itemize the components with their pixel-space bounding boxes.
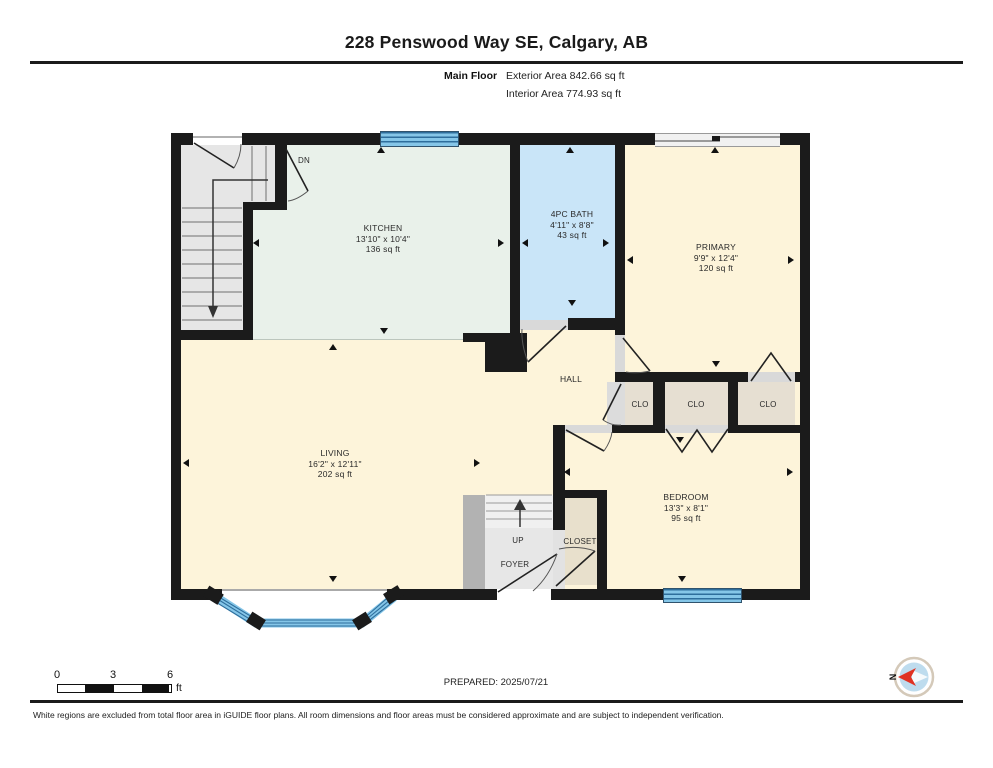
measure-arrow — [787, 468, 793, 476]
wall-segment — [243, 202, 253, 340]
measure-arrow — [566, 147, 574, 153]
wall-segment — [171, 330, 253, 340]
room-dims: 13'10" x 10'4" — [313, 234, 453, 245]
wall-segment — [568, 318, 615, 330]
measure-arrow — [474, 459, 480, 467]
compass-icon: N — [888, 658, 933, 696]
room-dims: 13'3" x 8'1" — [616, 503, 756, 514]
bay-window-opening — [222, 589, 387, 600]
bath-label: 4PC BATH 4'11" x 8'8" 43 sq ft — [502, 209, 642, 241]
header-rule — [30, 61, 963, 64]
living-label: LIVING 16'2" x 12'11" 202 sq ft — [265, 448, 405, 480]
scale-bar — [57, 684, 172, 693]
scale-tick-0: 0 — [47, 669, 67, 681]
floor-label: Main Floor — [444, 70, 497, 82]
foyer-closet-label: CLOSET — [550, 537, 610, 548]
clo2-label: CLO — [676, 400, 716, 411]
bay-window-glass — [216, 597, 394, 623]
wall-segment — [387, 589, 497, 600]
door-opening-primary-closet — [748, 372, 795, 382]
room-dims: 16'2" x 12'11" — [265, 459, 405, 470]
scale-tick-3: 3 — [103, 669, 123, 681]
wall-segment — [615, 372, 625, 382]
wall-segment — [728, 372, 738, 433]
footer-rule — [30, 700, 963, 703]
room-area: 202 sq ft — [265, 469, 405, 480]
room-area: 95 sq ft — [616, 513, 756, 524]
measure-arrow — [788, 256, 794, 264]
exterior-area: Exterior Area 842.66 sq ft — [506, 70, 624, 82]
measure-arrow — [183, 459, 189, 467]
room-dims: 4'11" x 8'8" — [502, 220, 642, 231]
measure-arrow — [627, 256, 633, 264]
clo1-label: CLO — [620, 400, 660, 411]
measure-arrow — [329, 576, 337, 582]
wall-segment — [171, 133, 181, 600]
up-label: UP — [498, 536, 538, 547]
door-opening-bedroom — [565, 425, 612, 433]
wall-segment — [242, 133, 380, 145]
foyer-stair-treads — [485, 495, 553, 528]
clo3-label: CLO — [748, 400, 788, 411]
disclaimer-text: White regions are excluded from total fl… — [33, 710, 953, 720]
measure-arrow — [568, 300, 576, 306]
kitchen-living-boundary — [253, 339, 463, 340]
wall-segment — [275, 143, 287, 203]
measure-arrow — [377, 147, 385, 153]
door-opening-bath — [520, 320, 568, 330]
room-dims: 9'9" x 12'4" — [646, 253, 786, 264]
foyer-label: FOYER — [485, 560, 545, 571]
room-name: PRIMARY — [646, 242, 786, 253]
wall-segment — [800, 133, 810, 600]
measure-arrow — [712, 361, 720, 367]
door-opening-back — [193, 133, 242, 145]
measure-arrow — [676, 437, 684, 443]
wall-segment — [485, 342, 527, 372]
north-label: N — [888, 674, 898, 681]
kitchen-label: KITCHEN 13'10" x 10'4" 136 sq ft — [313, 223, 453, 255]
wall-segment — [740, 589, 810, 600]
kitchen-window — [380, 131, 459, 147]
wall-segment — [551, 589, 663, 600]
floorplan-page: 228 Penswood Way SE, Calgary, AB Main Fl… — [0, 0, 993, 768]
primary-window — [655, 133, 780, 147]
scale-unit: ft — [176, 682, 182, 694]
measure-arrow — [380, 328, 388, 334]
page-title: 228 Penswood Way SE, Calgary, AB — [0, 32, 993, 53]
scale-tick-6: 6 — [160, 669, 180, 681]
measure-arrow — [678, 576, 686, 582]
primary-label: PRIMARY 9'9" x 12'4" 120 sq ft — [646, 242, 786, 274]
measure-arrow — [522, 239, 528, 247]
door-opening-entry — [497, 589, 551, 600]
room-name: KITCHEN — [313, 223, 453, 234]
door-opening-primary — [615, 335, 625, 372]
wall-segment — [738, 425, 805, 433]
door-opening-bedroom-closet — [665, 425, 728, 433]
measure-arrow — [253, 239, 259, 247]
wall-segment — [553, 425, 565, 530]
room-name: LIVING — [265, 448, 405, 459]
measure-arrow — [329, 344, 337, 350]
wall-segment — [463, 333, 527, 342]
measure-arrow — [498, 239, 504, 247]
wall-segment — [795, 372, 810, 382]
hall-label: HALL — [536, 374, 606, 385]
wall-segment — [171, 589, 222, 600]
bedroom-label: BEDROOM 13'3" x 8'1" 95 sq ft — [616, 492, 756, 524]
scale-bar-segment — [142, 685, 169, 692]
measure-arrow — [711, 147, 719, 153]
dn-label: DN — [289, 156, 319, 167]
room-name: 4PC BATH — [502, 209, 642, 220]
measure-arrow — [564, 468, 570, 476]
foyer-dark-strip — [463, 495, 485, 589]
room-area: 136 sq ft — [313, 244, 453, 255]
prepared-date: PREPARED: 2025/07/21 — [346, 677, 646, 688]
measure-arrow — [603, 239, 609, 247]
room-area: 120 sq ft — [646, 263, 786, 274]
stairs-run — [181, 202, 243, 330]
scale-bar-segment — [85, 685, 114, 692]
room-name: BEDROOM — [616, 492, 756, 503]
wall-segment — [457, 133, 655, 145]
stairs-landing — [181, 145, 287, 202]
wall-segment — [612, 425, 653, 433]
interior-area: Interior Area 774.93 sq ft — [506, 88, 621, 100]
bedroom-window — [663, 588, 742, 603]
